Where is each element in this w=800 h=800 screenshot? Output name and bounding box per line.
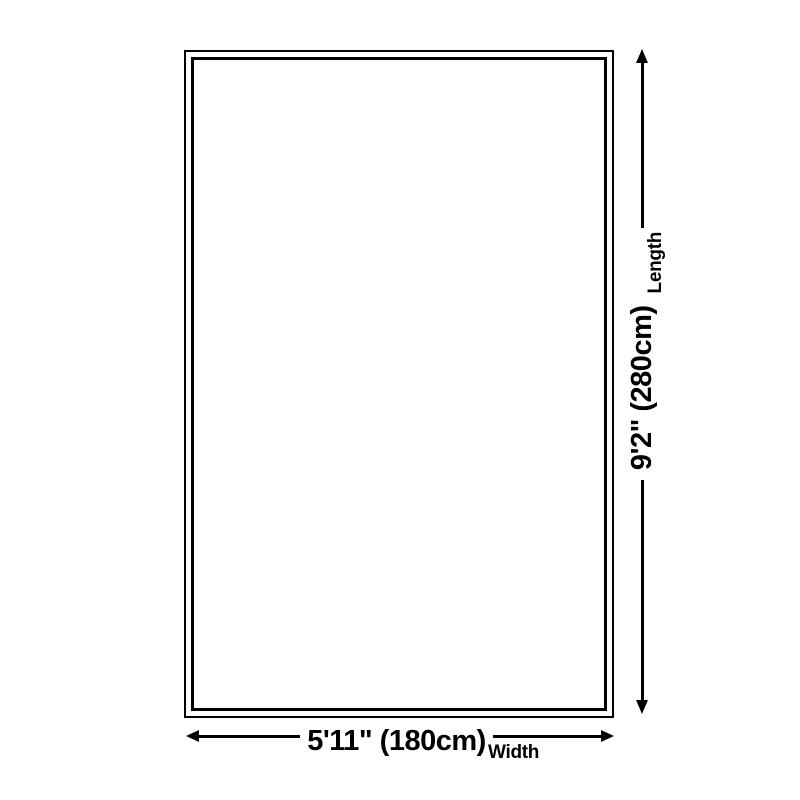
arrow-left-icon xyxy=(186,730,199,742)
width-dimension-line-left xyxy=(199,735,300,738)
length-dimension-line-top xyxy=(641,63,644,228)
length-dimension-label: 9'2" (280cm)Length xyxy=(625,224,659,478)
width-caption: Width xyxy=(488,743,539,764)
rug-inner-border xyxy=(191,57,607,711)
width-dimension-line-right xyxy=(493,735,601,738)
rug-size-diagram: 9'2" (280cm)Length 5'11" (180cm) Width xyxy=(0,0,800,800)
arrow-right-icon xyxy=(601,730,614,742)
width-value: 5'11" (180cm) xyxy=(300,724,493,758)
length-value: 9'2" (280cm) xyxy=(626,305,658,470)
length-dimension-line-bottom xyxy=(641,480,644,700)
arrow-down-icon xyxy=(636,700,648,714)
rug-outline xyxy=(184,50,614,718)
length-caption: Length xyxy=(645,232,666,294)
arrow-up-icon xyxy=(636,49,648,63)
